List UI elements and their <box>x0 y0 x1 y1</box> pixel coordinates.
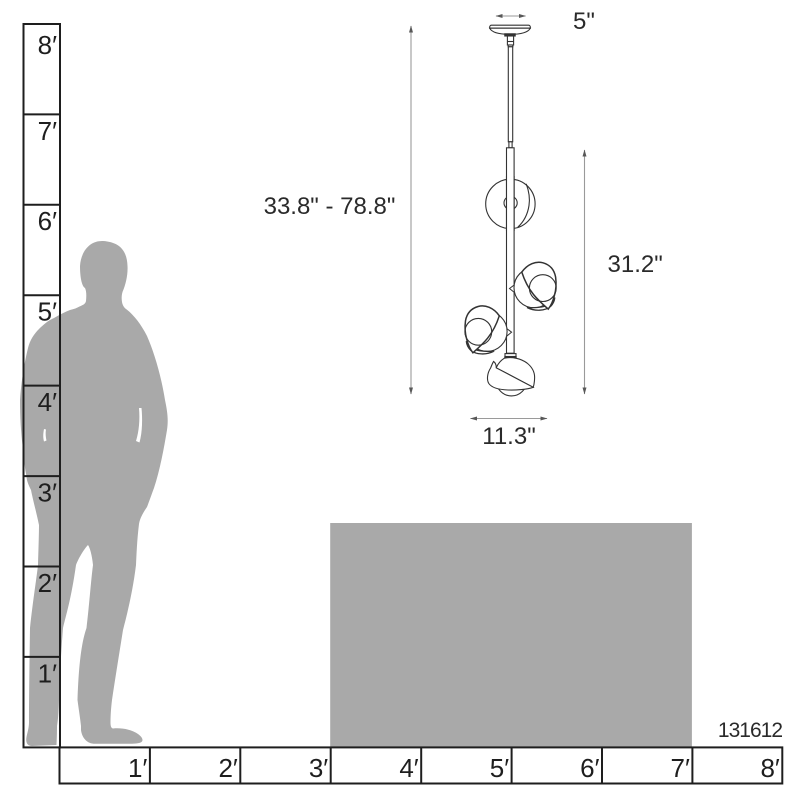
svg-text:1′: 1′ <box>128 753 147 783</box>
svg-text:5′: 5′ <box>490 753 509 783</box>
svg-text:33.8" - 78.8": 33.8" - 78.8" <box>264 193 396 220</box>
svg-text:4′: 4′ <box>399 753 418 783</box>
svg-text:8′: 8′ <box>760 753 779 783</box>
svg-text:5′: 5′ <box>38 297 57 327</box>
svg-text:3′: 3′ <box>309 753 328 783</box>
svg-text:5": 5" <box>573 8 595 35</box>
svg-text:7′: 7′ <box>671 753 690 783</box>
svg-text:11.3": 11.3" <box>482 423 535 450</box>
svg-text:3′: 3′ <box>38 478 57 508</box>
svg-text:7′: 7′ <box>38 116 57 146</box>
svg-text:2′: 2′ <box>218 753 237 783</box>
svg-text:131612: 131612 <box>718 719 782 742</box>
svg-text:6′: 6′ <box>38 206 57 236</box>
svg-text:8′: 8′ <box>38 30 57 60</box>
svg-text:31.2": 31.2" <box>608 251 663 278</box>
svg-text:4′: 4′ <box>38 387 57 417</box>
svg-text:2′: 2′ <box>38 568 57 598</box>
svg-text:6′: 6′ <box>580 753 599 783</box>
svg-text:1′: 1′ <box>38 659 57 689</box>
